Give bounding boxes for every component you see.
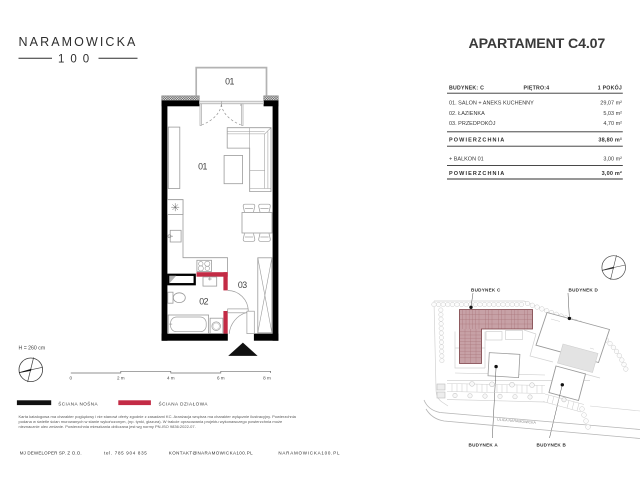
svg-text:BUDYNEK C: BUDYNEK C [471,288,501,293]
svg-text:POWIERZCHNIA: POWIERZCHNIA [449,138,505,144]
svg-text:KONTAKT@NARAMOWICKA100.PL: KONTAKT@NARAMOWICKA100.PL [169,451,253,456]
svg-text:100: 100 [58,54,95,66]
svg-text:0: 0 [70,376,73,381]
svg-text:6 m: 6 m [217,376,225,381]
svg-text:tel. 785 904 835: tel. 785 904 835 [104,451,147,456]
svg-text:ŚCIANA NOŚNA: ŚCIANA NOŚNA [58,399,98,406]
svg-text:29,07 m²: 29,07 m² [600,100,622,106]
svg-text:01: 01 [225,76,234,86]
svg-text:APARTAMENT C4.07: APARTAMENT C4.07 [469,36,606,52]
svg-text:1 POKÓJ: 1 POKÓJ [598,84,622,92]
svg-text:5,03 m²: 5,03 m² [603,111,622,117]
svg-text:MJ DEWELOPER SP. Z O.O.: MJ DEWELOPER SP. Z O.O. [20,451,82,456]
svg-text:NARAMOWICKA100.PL: NARAMOWICKA100.PL [278,451,340,456]
svg-text:BUDYNEK A: BUDYNEK A [469,443,499,448]
svg-text:01. SALON + ANEKS KUCHENNY: 01. SALON + ANEKS KUCHENNY [449,100,534,106]
svg-text:3,00 m²: 3,00 m² [603,156,622,162]
svg-text:03: 03 [238,280,247,290]
svg-text:NARAMOWICKA: NARAMOWICKA [19,35,138,49]
svg-text:4,70 m²: 4,70 m² [603,121,622,127]
svg-text:02: 02 [199,297,208,307]
svg-text:3,00 m²: 3,00 m² [602,170,622,177]
svg-text:4 m: 4 m [167,376,175,381]
svg-text:2 m: 2 m [117,376,125,381]
svg-text:PIĘTRO:4: PIĘTRO:4 [524,86,550,92]
svg-text:BUDYNEK: C: BUDYNEK: C [449,86,484,92]
svg-text:POWIERZCHNIA: POWIERZCHNIA [449,171,505,177]
svg-text:03. PRZEDPOKÓJ: 03. PRZEDPOKÓJ [449,120,496,127]
svg-text:H = 260 cm: H = 260 cm [19,346,46,352]
svg-text:nieznacznie ulec zmianie. Powi: nieznacznie ulec zmianie. Powierzchnia m… [19,424,196,429]
svg-text:02. ŁAZIENKA: 02. ŁAZIENKA [449,111,485,117]
svg-text:+ BALKON 01: + BALKON 01 [449,156,484,162]
svg-text:BUDYNEK B: BUDYNEK B [537,443,567,448]
svg-text:38,80 m²: 38,80 m² [598,137,622,144]
svg-text:8 m: 8 m [263,376,271,381]
svg-text:ŚCIANA DZIAŁOWA: ŚCIANA DZIAŁOWA [159,399,209,406]
svg-text:BUDYNEK D: BUDYNEK D [569,288,599,293]
svg-text:01: 01 [198,161,207,171]
